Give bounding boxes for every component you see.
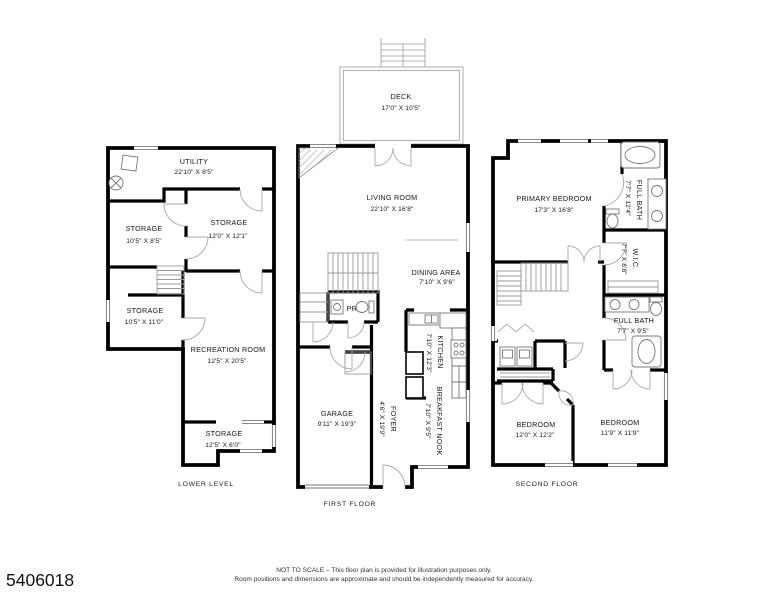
room-name: GARAGE xyxy=(321,409,353,418)
room-dims: 22'10" X 8'5" xyxy=(174,169,214,176)
lower-level-caption: LOWER LEVEL xyxy=(141,481,271,488)
room-dims: 9'11" X 19'3" xyxy=(318,421,357,428)
stairs xyxy=(157,266,184,294)
room-name: BREAKFAST NOOK xyxy=(435,387,444,456)
kitchen-fixtures xyxy=(406,313,466,398)
room-dims: 4'6" X 19'9" xyxy=(378,401,385,437)
stairs xyxy=(497,263,568,305)
room-name: BEDROOM xyxy=(601,418,640,427)
room-dims: 17'0" X 10'5" xyxy=(381,105,421,112)
deck-stairs xyxy=(381,38,425,67)
room-dims: 17'3" X 16'8" xyxy=(534,207,574,214)
toilet-icon xyxy=(607,214,618,228)
stairs xyxy=(328,253,378,293)
room-dims: 10'5" X 8'5" xyxy=(126,238,162,245)
lower-level-plan: UTILITY 22'10" X 8'5" STORAGE 10'5" X 8'… xyxy=(95,138,290,483)
sliding-closet-doors xyxy=(500,373,550,377)
room-dims: 22'10" X 16'8" xyxy=(370,206,414,213)
room-dims: 12'5" X 20'5" xyxy=(207,358,247,365)
room-dims: 7'10" X 9'5" xyxy=(424,403,431,439)
first-floor-caption: FIRST FLOOR xyxy=(285,501,415,508)
toilet-icon xyxy=(356,302,368,313)
bifold-door xyxy=(498,324,534,332)
garage-door xyxy=(305,483,369,491)
room-dims: 12'5" X 6'0" xyxy=(205,442,241,449)
room-name: STORAGE xyxy=(126,224,163,233)
room-name: STORAGE xyxy=(127,306,164,315)
water-heater-icon xyxy=(109,176,123,190)
first-floor-plan: DECK 17'0" X 10'5" LIVING ROOM 22'10" X … xyxy=(290,28,488,500)
room-name: RECREATION ROOM xyxy=(191,345,266,354)
room-name: LIVING ROOM xyxy=(367,193,418,202)
second-floor-caption: SECOND FLOOR xyxy=(482,481,612,488)
room-name: KITCHEN xyxy=(436,335,445,368)
disclaimer: NOT TO SCALE – This floor plan is provid… xyxy=(0,567,768,584)
furnace-icon xyxy=(121,155,138,171)
room-name: FOYER xyxy=(389,406,398,432)
disclaimer-line-2: Room positions and dimensions are approx… xyxy=(0,576,768,585)
doors xyxy=(164,189,262,340)
room-name: FULL BATH xyxy=(635,180,644,220)
wic-shelving xyxy=(608,281,658,293)
room-dims: 7'7" X 8'8" xyxy=(620,243,627,275)
laundry-appliances xyxy=(500,347,550,377)
sink-icon xyxy=(334,304,341,311)
room-name: FULL BATH xyxy=(614,316,654,325)
fireplace xyxy=(299,148,338,178)
second-floor-plan: PRIMARY BEDROOM 17'3" X 16'8" FULL BATH … xyxy=(488,120,680,472)
room-dims: 12'0" X 12'1" xyxy=(208,233,248,240)
room-name: STORAGE xyxy=(206,429,243,438)
sink-icon xyxy=(629,300,639,310)
refrigerator-icon xyxy=(406,352,423,374)
windows xyxy=(104,144,278,455)
room-dims: 7'10" X 12'3" xyxy=(425,333,432,373)
room-dims: 7'7" X 12'4" xyxy=(624,180,631,216)
sink-icon xyxy=(652,186,663,197)
room-name: DINING AREA xyxy=(411,268,460,277)
room-dims: 10'5" X 11'0" xyxy=(125,319,164,326)
room-name: W.I.C. xyxy=(631,248,640,269)
room-dims: 7'10" X 9'6" xyxy=(419,279,455,286)
pantry-icon xyxy=(406,377,423,398)
room-name: DECK xyxy=(391,92,412,101)
sink-icon xyxy=(610,300,620,310)
disclaimer-line-1: NOT TO SCALE – This floor plan is provid… xyxy=(0,567,768,576)
stove-icon xyxy=(451,340,466,358)
room-name: PR xyxy=(347,304,358,313)
room-name: BEDROOM xyxy=(517,420,556,429)
sink-icon xyxy=(652,211,663,222)
toilet-icon xyxy=(651,303,662,316)
floor-plan-page: UTILITY 22'10" X 8'5" STORAGE 10'5" X 8'… xyxy=(0,0,768,594)
room-name: PRIMARY BEDROOM xyxy=(516,194,591,203)
room-dims: 12'0" X 12'2" xyxy=(515,432,555,439)
room-dims: 7'7" X 9'5" xyxy=(617,328,649,335)
room-dims: 11'9" X 11'9" xyxy=(601,430,640,437)
room-name: UTILITY xyxy=(180,157,209,166)
room-name: STORAGE xyxy=(211,218,248,227)
